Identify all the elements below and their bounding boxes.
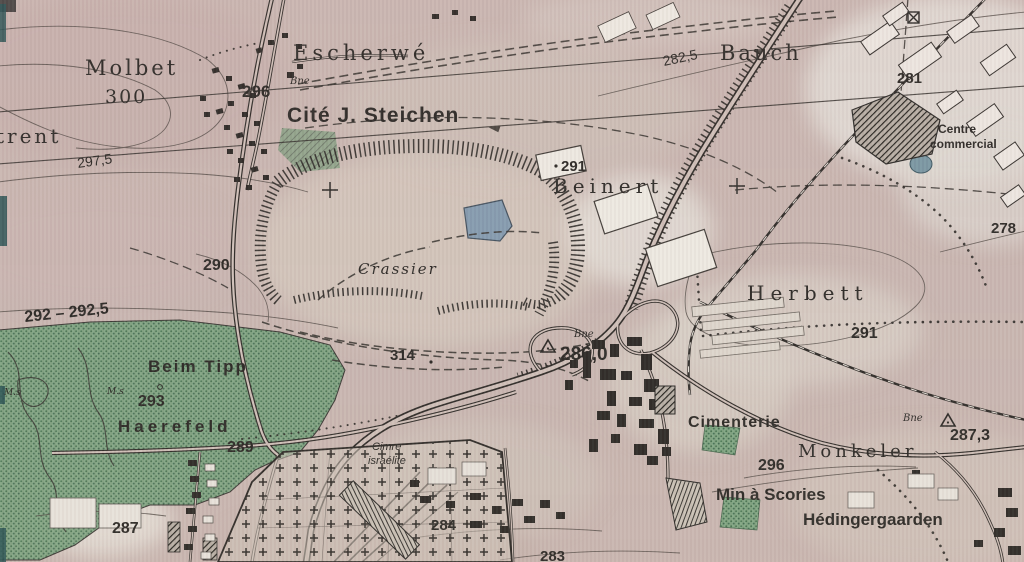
label-bne-top: Bne xyxy=(289,76,310,87)
label-elev-278: 278 xyxy=(991,220,1016,237)
label-herbett: Herbett xyxy=(747,281,869,305)
label-elev-314: 314 xyxy=(390,347,416,364)
label-elev-289: 289 xyxy=(227,439,254,456)
label-elev-284: 284 xyxy=(431,517,457,534)
label-centre-commercial-1: Centre xyxy=(938,122,976,136)
label-escherwe: Escherwé xyxy=(293,41,429,65)
label-elev-300: 300 xyxy=(105,86,147,108)
label-monkeler: Monkeler xyxy=(798,441,917,462)
map-canvas: Molbet 300 trent 297,5 Escherwé 296 Bne … xyxy=(0,0,1024,562)
label-ms-mid: M.s xyxy=(106,387,124,397)
label-elev-287-3: 287,3 xyxy=(950,427,990,444)
label-cimetiere-israelite-1: Cimre xyxy=(372,441,401,453)
label-elev-283: 283 xyxy=(540,548,565,562)
label-bauch: Bauch xyxy=(720,41,802,65)
topographic-map: Molbet 300 trent 297,5 Escherwé 296 Bne … xyxy=(0,0,1024,562)
label-hedingergaarden: Hédingergaarden xyxy=(803,510,943,529)
label-trent: trent xyxy=(0,124,61,148)
label-beim-tipp: Beim Tipp xyxy=(148,357,248,376)
spot-height-dot-314 xyxy=(429,360,432,363)
label-elev-291-beinert: 291 xyxy=(561,158,586,175)
label-cimenterie: Cimenterie xyxy=(688,414,781,431)
label-elev-296-bottom: 296 xyxy=(758,457,785,474)
label-bne-287: Bne xyxy=(902,413,923,424)
label-centre-commercial-2: commercial xyxy=(930,137,997,151)
label-cimetiere-israelite-2: israélite xyxy=(368,455,406,467)
label-molbet: Molbet xyxy=(85,56,178,80)
label-haerefeld: Haerefeld xyxy=(118,417,231,436)
spot-height-dot-291 xyxy=(554,164,557,167)
label-elev-290: 290 xyxy=(203,257,230,274)
label-elev-287: 287 xyxy=(112,520,139,537)
label-elev-293: 293 xyxy=(138,393,165,410)
label-ms-left: M.s xyxy=(3,388,21,398)
label-elev-286-0: 286,0 xyxy=(560,344,608,365)
label-min-a-scories: Min à Scories xyxy=(716,485,826,504)
label-elev-291-herbett: 291 xyxy=(851,325,878,342)
label-elev-296-top: 296 xyxy=(242,82,270,101)
label-cite-j-steichen: Cité J. Steichen xyxy=(287,104,459,127)
label-beinert: Beinert xyxy=(553,174,663,198)
label-elev-281: 281 xyxy=(897,70,922,87)
label-bne-286: Bne xyxy=(573,329,594,340)
label-crassier: Crassier xyxy=(358,260,438,278)
